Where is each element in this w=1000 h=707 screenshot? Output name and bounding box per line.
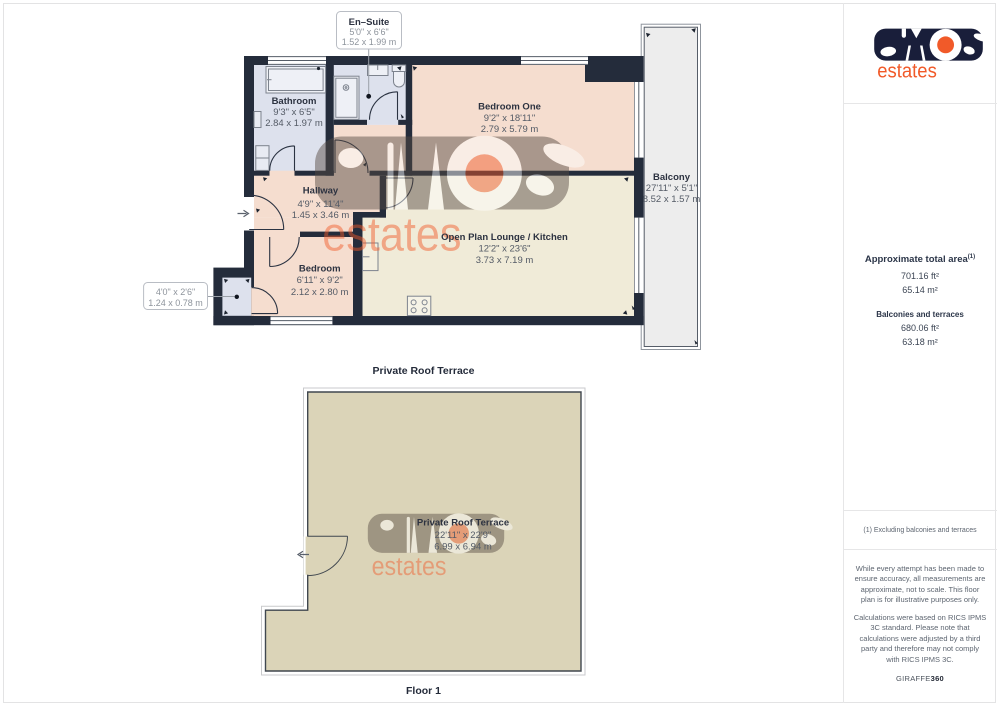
svg-text:27'11" x 5'1": 27'11" x 5'1" xyxy=(646,183,697,194)
svg-text:Bedroom One: Bedroom One xyxy=(478,102,541,113)
svg-text:Open Plan Lounge / Kitchen: Open Plan Lounge / Kitchen xyxy=(441,232,568,243)
svg-text:8.52 x 1.57 m: 8.52 x 1.57 m xyxy=(643,194,701,205)
svg-text:22'11" x 22'9": 22'11" x 22'9" xyxy=(435,530,492,541)
svg-text:4'9" x 11'4": 4'9" x 11'4" xyxy=(297,199,343,210)
svg-text:2.79 x 5.79 m: 2.79 x 5.79 m xyxy=(481,124,539,135)
svg-text:6.99 x 6.94 m: 6.99 x 6.94 m xyxy=(434,542,492,553)
svg-text:1.24 x 0.78 m: 1.24 x 0.78 m xyxy=(148,298,203,308)
svg-text:Bathroom: Bathroom xyxy=(272,96,317,107)
svg-text:12'2" x 23'6": 12'2" x 23'6" xyxy=(478,244,530,255)
svg-text:Private Roof Terrace: Private Roof Terrace xyxy=(417,518,509,529)
svg-text:6'11" x 9'2": 6'11" x 9'2" xyxy=(297,275,343,286)
svg-text:Hallway: Hallway xyxy=(303,186,339,197)
svg-text:9'2" x 18'11": 9'2" x 18'11" xyxy=(484,113,535,124)
svg-text:9'3" x 6'5": 9'3" x 6'5" xyxy=(273,107,315,118)
svg-text:3.73 x 7.19 m: 3.73 x 7.19 m xyxy=(476,255,534,266)
svg-text:1.52 x 1.99 m: 1.52 x 1.99 m xyxy=(342,37,397,47)
svg-text:Balcony: Balcony xyxy=(653,172,691,183)
svg-text:5'0" x 6'6": 5'0" x 6'6" xyxy=(349,27,388,37)
svg-text:Bedroom: Bedroom xyxy=(299,263,341,274)
svg-text:1.45 x 3.46 m: 1.45 x 3.46 m xyxy=(292,210,350,221)
svg-text:2.12 x 2.80 m: 2.12 x 2.80 m xyxy=(291,287,349,298)
svg-text:2.84 x 1.97 m: 2.84 x 1.97 m xyxy=(265,118,323,129)
svg-text:Private Roof Terrace: Private Roof Terrace xyxy=(373,365,475,377)
svg-text:4'0" x 2'6": 4'0" x 2'6" xyxy=(156,287,195,297)
svg-text:Floor 1: Floor 1 xyxy=(406,685,441,697)
